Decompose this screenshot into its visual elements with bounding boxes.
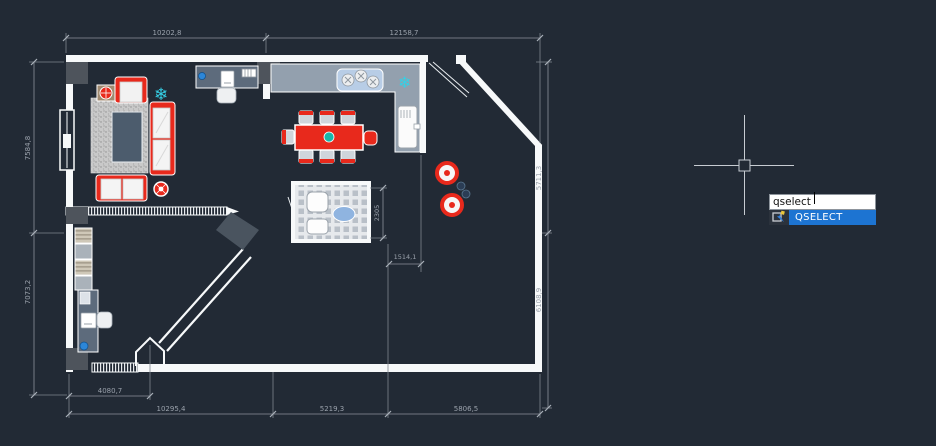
dim-bottom-middle: 5219,3 [320, 405, 345, 413]
side-table-dot-1 [457, 182, 465, 190]
sofa[interactable] [150, 102, 175, 175]
bottom-window[interactable] [92, 363, 138, 372]
dim-bottom-right: 5806,5 [454, 405, 479, 413]
text-caret [814, 192, 815, 204]
door-panel[interactable] [216, 212, 259, 250]
dynamic-input: QSELECT [769, 190, 876, 225]
plant-red[interactable] [154, 182, 168, 196]
armchair-top[interactable] [115, 77, 147, 103]
qselect-icon [769, 209, 789, 225]
radiator [242, 69, 256, 77]
hatched-partition-wall[interactable] [66, 207, 239, 215]
autocomplete-item-qselect[interactable]: QSELECT [769, 209, 876, 225]
autocomplete-list: QSELECT [769, 209, 876, 225]
desk-dot-blue [80, 342, 88, 350]
bathtub [307, 192, 328, 212]
dim-right-lower: 6108,9 [535, 288, 543, 313]
dining-set[interactable] [282, 111, 377, 163]
plant-snowflake-2[interactable]: ❄ [398, 73, 411, 92]
autocomplete-item-label: QSELECT [795, 212, 843, 223]
dim-top-right: 12158,7 [390, 29, 419, 37]
command-input[interactable] [769, 194, 876, 210]
pickbox [739, 160, 750, 171]
desk-top[interactable] [196, 66, 258, 103]
side-table[interactable] [97, 85, 115, 101]
dim-top-left: 10202,8 [153, 29, 182, 37]
dim-interior-small: 1514,1 [394, 253, 417, 261]
autocomplete-label-cell: QSELECT [789, 209, 876, 225]
wardrobe[interactable] [75, 228, 92, 290]
round-chairs[interactable] [437, 163, 470, 215]
dim-bathroom-height: 2305 [373, 205, 381, 222]
dim-bottom-inner-left: 4080,7 [98, 387, 123, 395]
fridge[interactable] [398, 106, 420, 148]
cooktop[interactable] [337, 69, 383, 91]
sink [333, 207, 355, 222]
dim-bottom-left: 10295,4 [157, 405, 186, 413]
diagonal-wall[interactable] [136, 249, 251, 366]
desk-bottom[interactable] [78, 290, 112, 352]
desk-lamp-blue [199, 73, 206, 80]
cad-canvas[interactable]: ❄ [0, 0, 936, 446]
side-table-dot-2 [462, 190, 470, 198]
left-window[interactable] [60, 110, 74, 170]
toilet [307, 219, 328, 234]
dim-left-upper: 7584,8 [24, 136, 32, 161]
coffee-table[interactable] [112, 112, 142, 162]
dim-right-upper: 5711,3 [535, 166, 543, 191]
loveseat-bottom[interactable] [96, 175, 147, 201]
bathroom[interactable] [293, 183, 369, 241]
dim-left-lower: 7073,2 [24, 280, 32, 305]
